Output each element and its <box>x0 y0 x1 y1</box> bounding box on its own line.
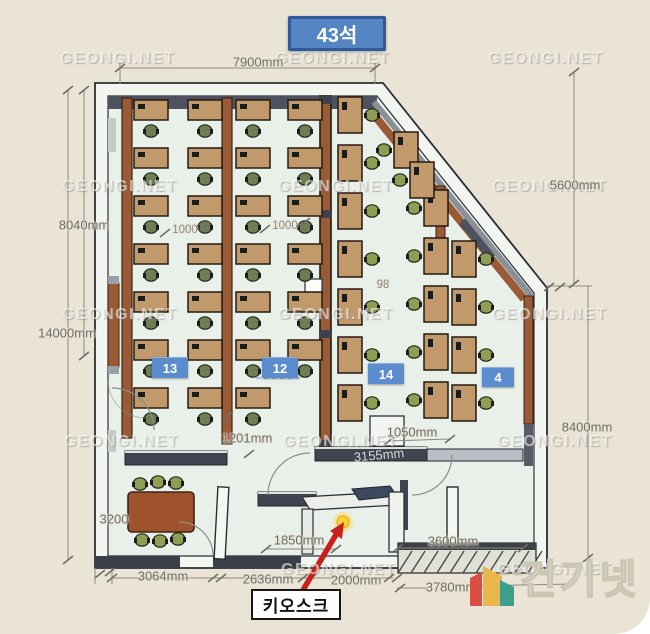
logo-text: 건기넷 <box>520 558 639 602</box>
chair-icon <box>297 365 313 377</box>
desk-icon <box>134 196 168 216</box>
chair-icon <box>478 301 494 313</box>
dim-top-width: 7900mm <box>233 55 284 70</box>
desk-icon <box>424 382 448 418</box>
chair-icon <box>297 317 313 329</box>
desk-icon <box>452 289 476 325</box>
chair-icon <box>170 533 186 545</box>
meeting-table <box>128 492 194 532</box>
dim-spacing-right: 1000 <box>272 220 298 232</box>
chair-icon <box>245 365 261 377</box>
chair-icon <box>197 173 213 185</box>
chair-icon <box>143 221 159 233</box>
dim-kiosk-width: 1850mm <box>274 533 325 548</box>
chair-icon <box>364 397 380 409</box>
desk-icon <box>188 244 222 264</box>
chair-icon <box>132 478 148 490</box>
desk-icon <box>424 238 448 274</box>
chair-icon <box>197 269 213 281</box>
desk-icon <box>338 385 362 421</box>
left-wall-bench <box>108 283 119 367</box>
dim-left-upper: 8040mm <box>59 218 110 233</box>
dim-lobby-right: 1050mm <box>387 425 438 440</box>
bottom-wall-mid <box>213 556 301 568</box>
chair-icon <box>197 413 213 425</box>
desk-icon <box>452 337 476 373</box>
dim-entrance-right: 3600mm <box>428 534 479 549</box>
dim-right-upper: 5600mm <box>550 178 601 193</box>
desk-icon <box>188 196 222 216</box>
chair-icon <box>143 125 159 137</box>
seat-count-title: 43석 <box>288 16 386 51</box>
chair-icon <box>364 157 380 169</box>
dim-bottom-2: 2636mm <box>243 572 294 587</box>
chair-icon <box>197 365 213 377</box>
chair-icon <box>197 317 213 329</box>
chair-icon <box>478 253 494 265</box>
desk-icon <box>134 244 168 264</box>
desk-icon <box>452 385 476 421</box>
chair-icon <box>245 125 261 137</box>
dim-lobby-left: 1201mm <box>222 431 273 446</box>
chair-icon <box>245 221 261 233</box>
desk-icon <box>236 388 270 408</box>
desk-icon <box>236 292 270 312</box>
desk-icon <box>134 148 168 168</box>
logo-house-icon <box>466 558 518 610</box>
badge-area-14: 14 <box>368 363 404 384</box>
chair-icon <box>297 269 313 281</box>
badge-area-12: 12 <box>262 357 298 378</box>
chair-icon <box>364 349 380 361</box>
desk-icon <box>338 241 362 277</box>
floorplan-canvas: GEONGI.NETGEONGI.NETGEONGI.NETGEONGI.NET… <box>0 0 650 634</box>
chair-icon <box>245 413 261 425</box>
desk-icon <box>134 292 168 312</box>
chair-icon <box>406 346 422 358</box>
desk-icon <box>188 340 222 360</box>
kiosk-callout-label: 키오스크 <box>251 589 341 620</box>
chair-icon <box>478 397 494 409</box>
desk-icon <box>188 148 222 168</box>
desk-icon <box>338 193 362 229</box>
desk-icon <box>338 145 362 181</box>
desk-icon <box>288 292 322 312</box>
desk-icon <box>236 148 270 168</box>
chair-icon <box>406 298 422 310</box>
desk-icon <box>188 100 222 120</box>
chair-icon <box>245 269 261 281</box>
desk-icon <box>338 289 362 325</box>
bottom-wall-left <box>95 556 180 568</box>
chair-icon <box>134 534 150 546</box>
chair-icon <box>406 250 422 262</box>
chair-icon <box>152 535 168 547</box>
right-wall-bench <box>524 296 533 424</box>
chair-icon <box>364 205 380 217</box>
dim-spacing-left: 1000 <box>172 224 198 236</box>
chair-icon <box>478 349 494 361</box>
desk-icon <box>288 196 322 216</box>
dim-tick <box>95 570 105 578</box>
dim-right-lower: 8400mm <box>562 420 613 435</box>
meeting-table-group <box>128 492 194 532</box>
chair-icon <box>168 477 184 489</box>
chair-icon <box>245 317 261 329</box>
dim-inner-small: 98 <box>377 279 390 291</box>
desk-icon <box>452 241 476 277</box>
chair-icon <box>197 125 213 137</box>
dim-meeting-width: 3200 <box>100 512 129 527</box>
desk-icon <box>338 97 362 133</box>
chair-icon <box>406 202 422 214</box>
desk-icon <box>424 286 448 322</box>
dim-tick <box>555 283 565 291</box>
counter-right <box>427 449 523 461</box>
chair-icon <box>392 174 408 186</box>
chair-icon <box>364 301 380 313</box>
desk-icon <box>288 148 322 168</box>
chair-icon <box>376 144 392 156</box>
dim-bottom-3: 2000mm <box>331 573 382 588</box>
desk-icon <box>188 388 222 408</box>
desk-icon <box>236 196 270 216</box>
chair-icon <box>297 173 313 185</box>
chair-icon <box>143 317 159 329</box>
desk-icon <box>338 337 362 373</box>
dim-tick <box>105 568 115 576</box>
chair-icon <box>143 269 159 281</box>
desk-icon <box>288 244 322 264</box>
chair-icon <box>245 173 261 185</box>
dim-left-lower: 14000mm <box>38 326 96 341</box>
badge-area-13: 13 <box>152 357 188 378</box>
chair-icon <box>150 476 166 488</box>
chair-icon <box>297 125 313 137</box>
desk-icon <box>188 292 222 312</box>
desk-icon <box>410 162 434 198</box>
site-logo: 건기넷 <box>466 558 639 610</box>
right-wall-face <box>524 424 533 466</box>
floorplan-drawing <box>0 0 650 634</box>
chair-icon <box>364 109 380 121</box>
desk-icon <box>134 100 168 120</box>
badge-area-4: 4 <box>482 367 514 387</box>
desk-icon <box>236 100 270 120</box>
dim-bottom-1: 3064mm <box>138 569 189 584</box>
counter-left <box>125 451 227 465</box>
desk-icon <box>236 244 270 264</box>
chair-icon <box>364 253 380 265</box>
chair-icon <box>406 394 422 406</box>
desk-icon <box>288 100 322 120</box>
desk-icon <box>424 334 448 370</box>
chair-icon <box>143 173 159 185</box>
